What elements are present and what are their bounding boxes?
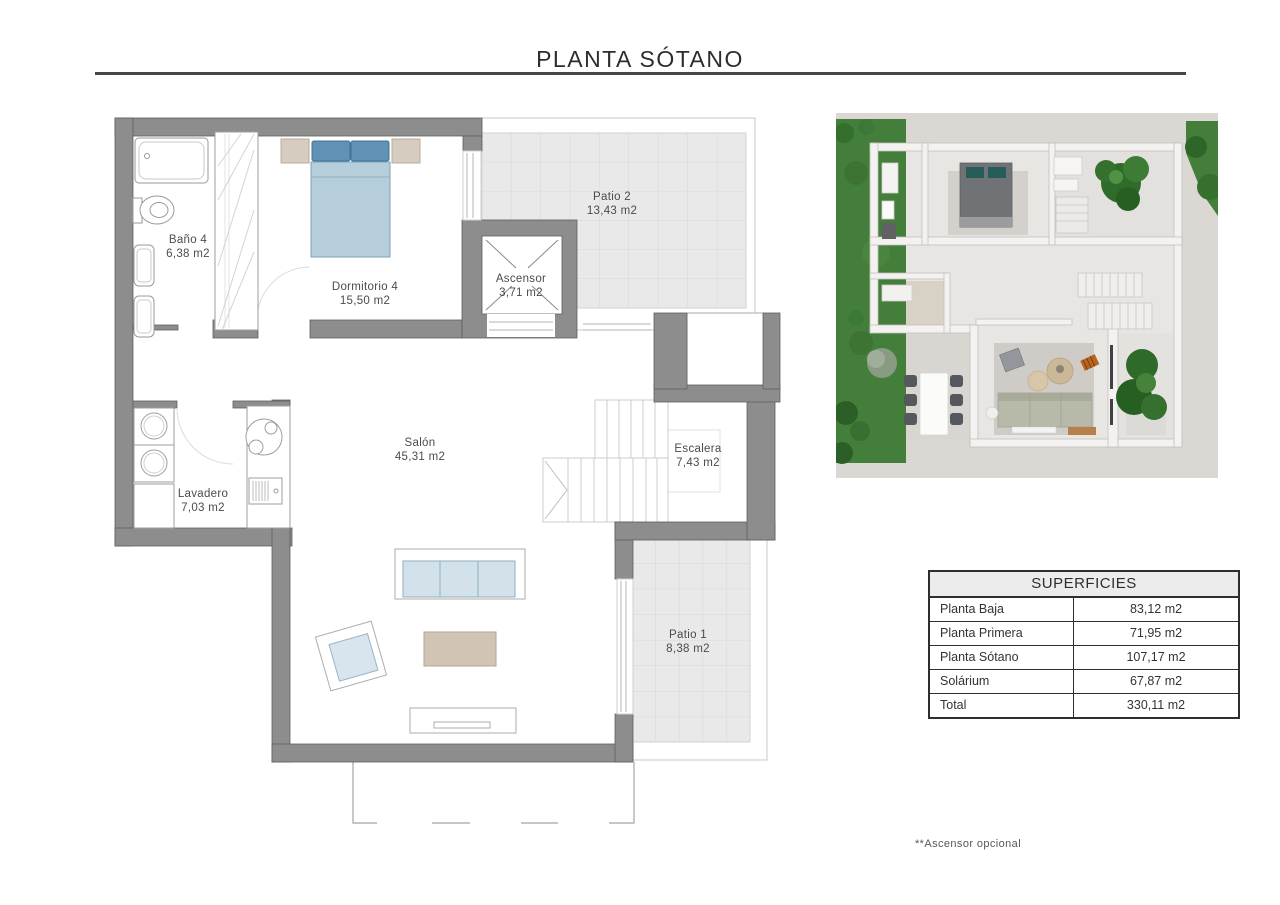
render-laundry-unit — [882, 285, 912, 301]
room-label-patio1: Patio 1 8,38 m2 — [623, 629, 753, 656]
exterior-boundary — [353, 762, 634, 823]
room-area: 6,38 m2 — [123, 248, 253, 262]
row-value: 107,17 m2 — [1074, 646, 1238, 669]
page-title: PLANTA SÓTANO — [0, 46, 1280, 73]
room-area: 8,38 m2 — [623, 643, 753, 657]
floor-plan — [100, 100, 790, 840]
row-label: Solárium — [930, 670, 1074, 693]
nightstand-left — [281, 139, 309, 163]
table-row: Total 330,11 m2 — [930, 694, 1238, 717]
table-row: Planta Sótano 107,17 m2 — [930, 646, 1238, 670]
storage-box — [687, 313, 765, 386]
room-name: Salón — [355, 437, 485, 451]
title-rule — [95, 72, 1186, 75]
room-area: 7,03 m2 — [138, 502, 268, 516]
row-label: Planta Baja — [930, 598, 1074, 621]
room-label-bano: Baño 4 6,38 m2 — [123, 234, 253, 261]
table-row: Planta Primera 71,95 m2 — [930, 622, 1238, 646]
table-row: Planta Baja 83,12 m2 — [930, 598, 1238, 622]
room-area: 45,31 m2 — [355, 451, 485, 465]
render-living — [986, 343, 1113, 435]
nightstand-right — [392, 139, 420, 163]
room-area: 13,43 m2 — [547, 205, 677, 219]
superficies-table: SUPERFICIES Planta Baja 83,12 m2 Planta … — [928, 570, 1240, 719]
room-name: Patio 1 — [623, 629, 753, 643]
room-area: 7,43 m2 — [633, 457, 763, 471]
row-value: 67,87 m2 — [1074, 670, 1238, 693]
pillow-left — [312, 141, 350, 161]
row-value: 71,95 m2 — [1074, 622, 1238, 645]
room-name: Ascensor — [456, 273, 586, 287]
room-name: Patio 2 — [547, 191, 677, 205]
bed — [281, 139, 420, 257]
room-label-lavadero: Lavadero 7,03 m2 — [138, 488, 268, 515]
room-name: Lavadero — [138, 488, 268, 502]
row-label: Total — [930, 694, 1074, 717]
footnote: **Ascensor opcional — [915, 838, 1021, 850]
room-name: Dormitorio 4 — [300, 281, 430, 295]
render-3d-top-view — [836, 113, 1218, 478]
room-label-patio2: Patio 2 13,43 m2 — [547, 191, 677, 218]
table-header: SUPERFICIES — [930, 572, 1238, 598]
room-label-ascensor: Ascensor 3,71 m2 — [456, 273, 586, 300]
coffee-table — [424, 632, 496, 666]
bed-body — [311, 162, 390, 257]
room-label-escalera: Escalera 7,43 m2 — [633, 443, 763, 470]
sofa-cushions — [403, 561, 515, 597]
room-area: 3,71 m2 — [456, 287, 586, 301]
room-name: Escalera — [633, 443, 763, 457]
room-label-salon: Salón 45,31 m2 — [355, 437, 485, 464]
tv-cabinet — [410, 708, 516, 733]
room-label-dormitorio: Dormitorio 4 15,50 m2 — [300, 281, 430, 308]
row-value: 330,11 m2 — [1074, 694, 1238, 717]
room-name: Baño 4 — [123, 234, 253, 248]
table-row: Solárium 67,87 m2 — [930, 670, 1238, 694]
wardrobe — [215, 132, 258, 330]
brochure-page: PLANTA SÓTANO — [0, 0, 1280, 905]
living-furniture — [315, 549, 525, 733]
row-value: 83,12 m2 — [1074, 598, 1238, 621]
pillow-right — [351, 141, 389, 161]
row-label: Planta Sótano — [930, 646, 1074, 669]
room-area: 15,50 m2 — [300, 295, 430, 309]
row-label: Planta Primera — [930, 622, 1074, 645]
